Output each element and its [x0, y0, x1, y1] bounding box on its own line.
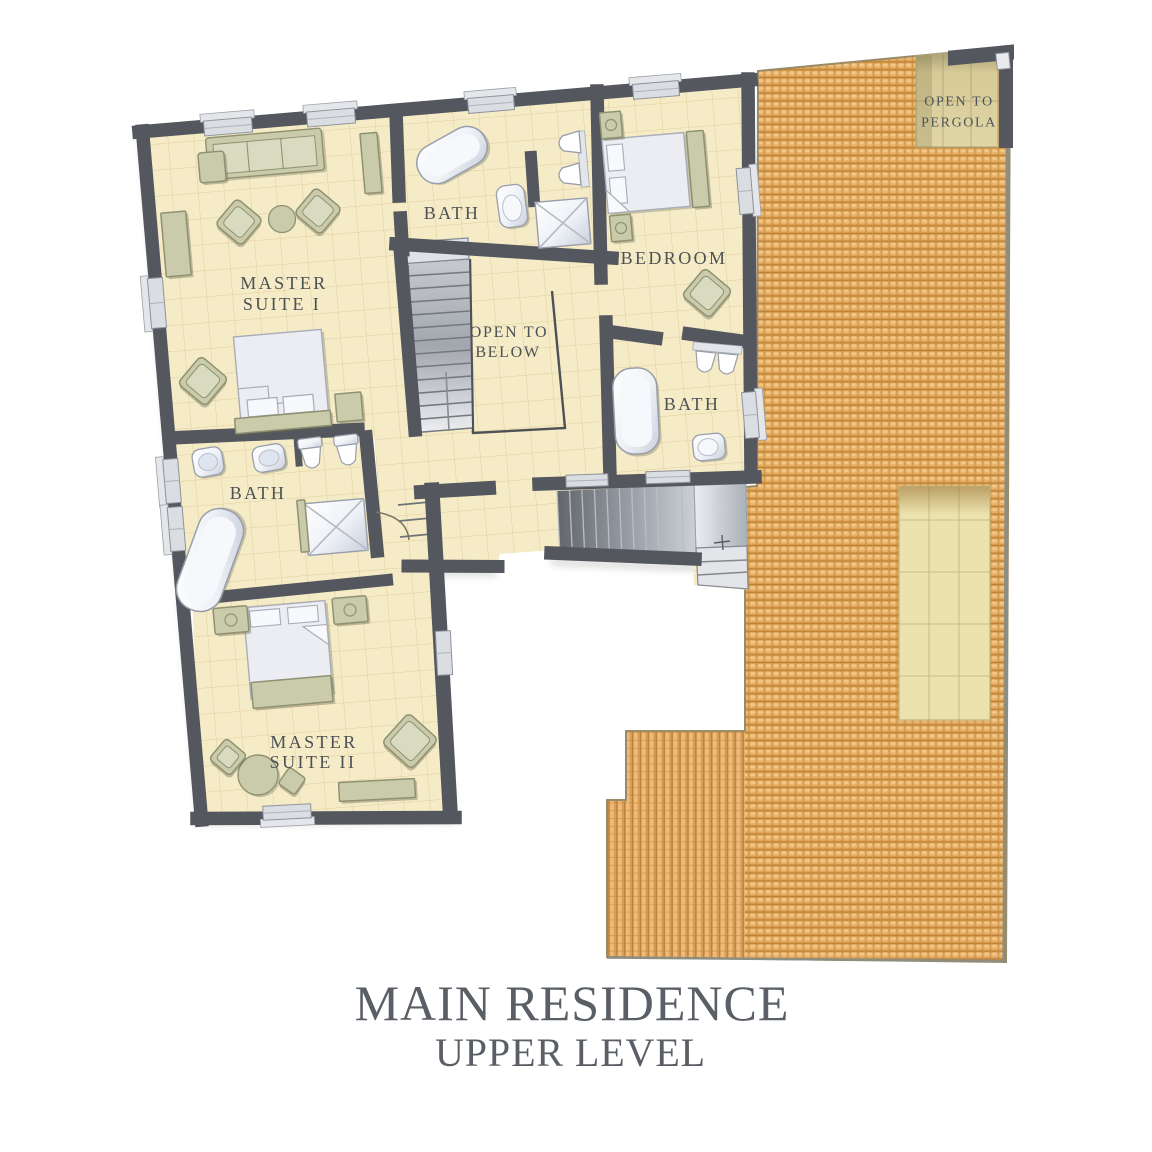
- svg-text:BEDROOM: BEDROOM: [621, 248, 728, 268]
- svg-text:OPEN TO: OPEN TO: [924, 95, 993, 110]
- svg-text:OPEN TO: OPEN TO: [470, 324, 548, 341]
- svg-text:MAIN RESIDENCE: MAIN RESIDENCE: [355, 975, 790, 1031]
- svg-text:BELOW: BELOW: [475, 344, 540, 361]
- svg-text:MASTER: MASTER: [240, 273, 327, 293]
- svg-text:BATH: BATH: [664, 394, 721, 414]
- svg-text:MASTER: MASTER: [270, 732, 357, 752]
- svg-text:BATH: BATH: [424, 203, 481, 223]
- svg-text:SUITE I: SUITE I: [243, 294, 321, 314]
- svg-text:UPPER LEVEL: UPPER LEVEL: [435, 1030, 706, 1075]
- svg-text:SUITE II: SUITE II: [270, 752, 357, 772]
- svg-text:PERGOLA: PERGOLA: [921, 116, 997, 131]
- svg-text:BATH: BATH: [230, 483, 287, 503]
